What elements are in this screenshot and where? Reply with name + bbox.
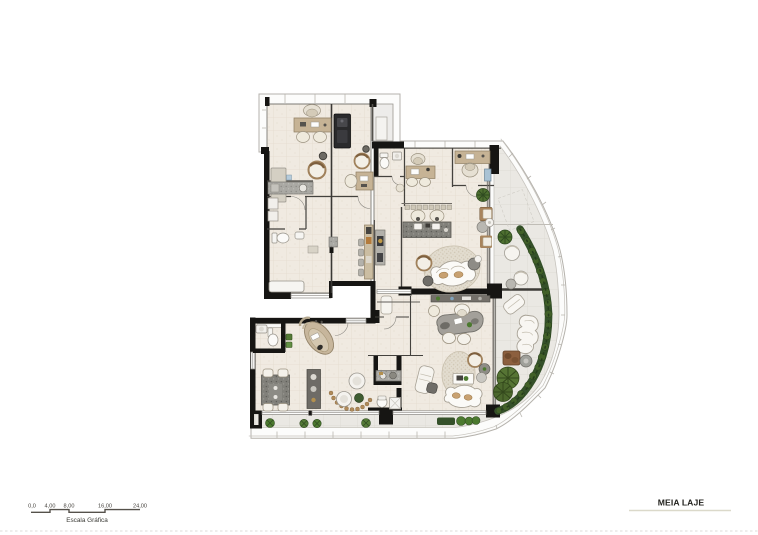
svg-text:8,00: 8,00	[64, 504, 75, 510]
svg-text:24,00: 24,00	[133, 504, 147, 510]
svg-text:Escala Gráfica: Escala Gráfica	[66, 517, 108, 524]
svg-text:4,00: 4,00	[45, 504, 56, 510]
svg-text:MEIA LAJE: MEIA LAJE	[658, 498, 705, 508]
svg-text:0,0: 0,0	[28, 504, 36, 510]
svg-text:16,00: 16,00	[98, 504, 112, 510]
